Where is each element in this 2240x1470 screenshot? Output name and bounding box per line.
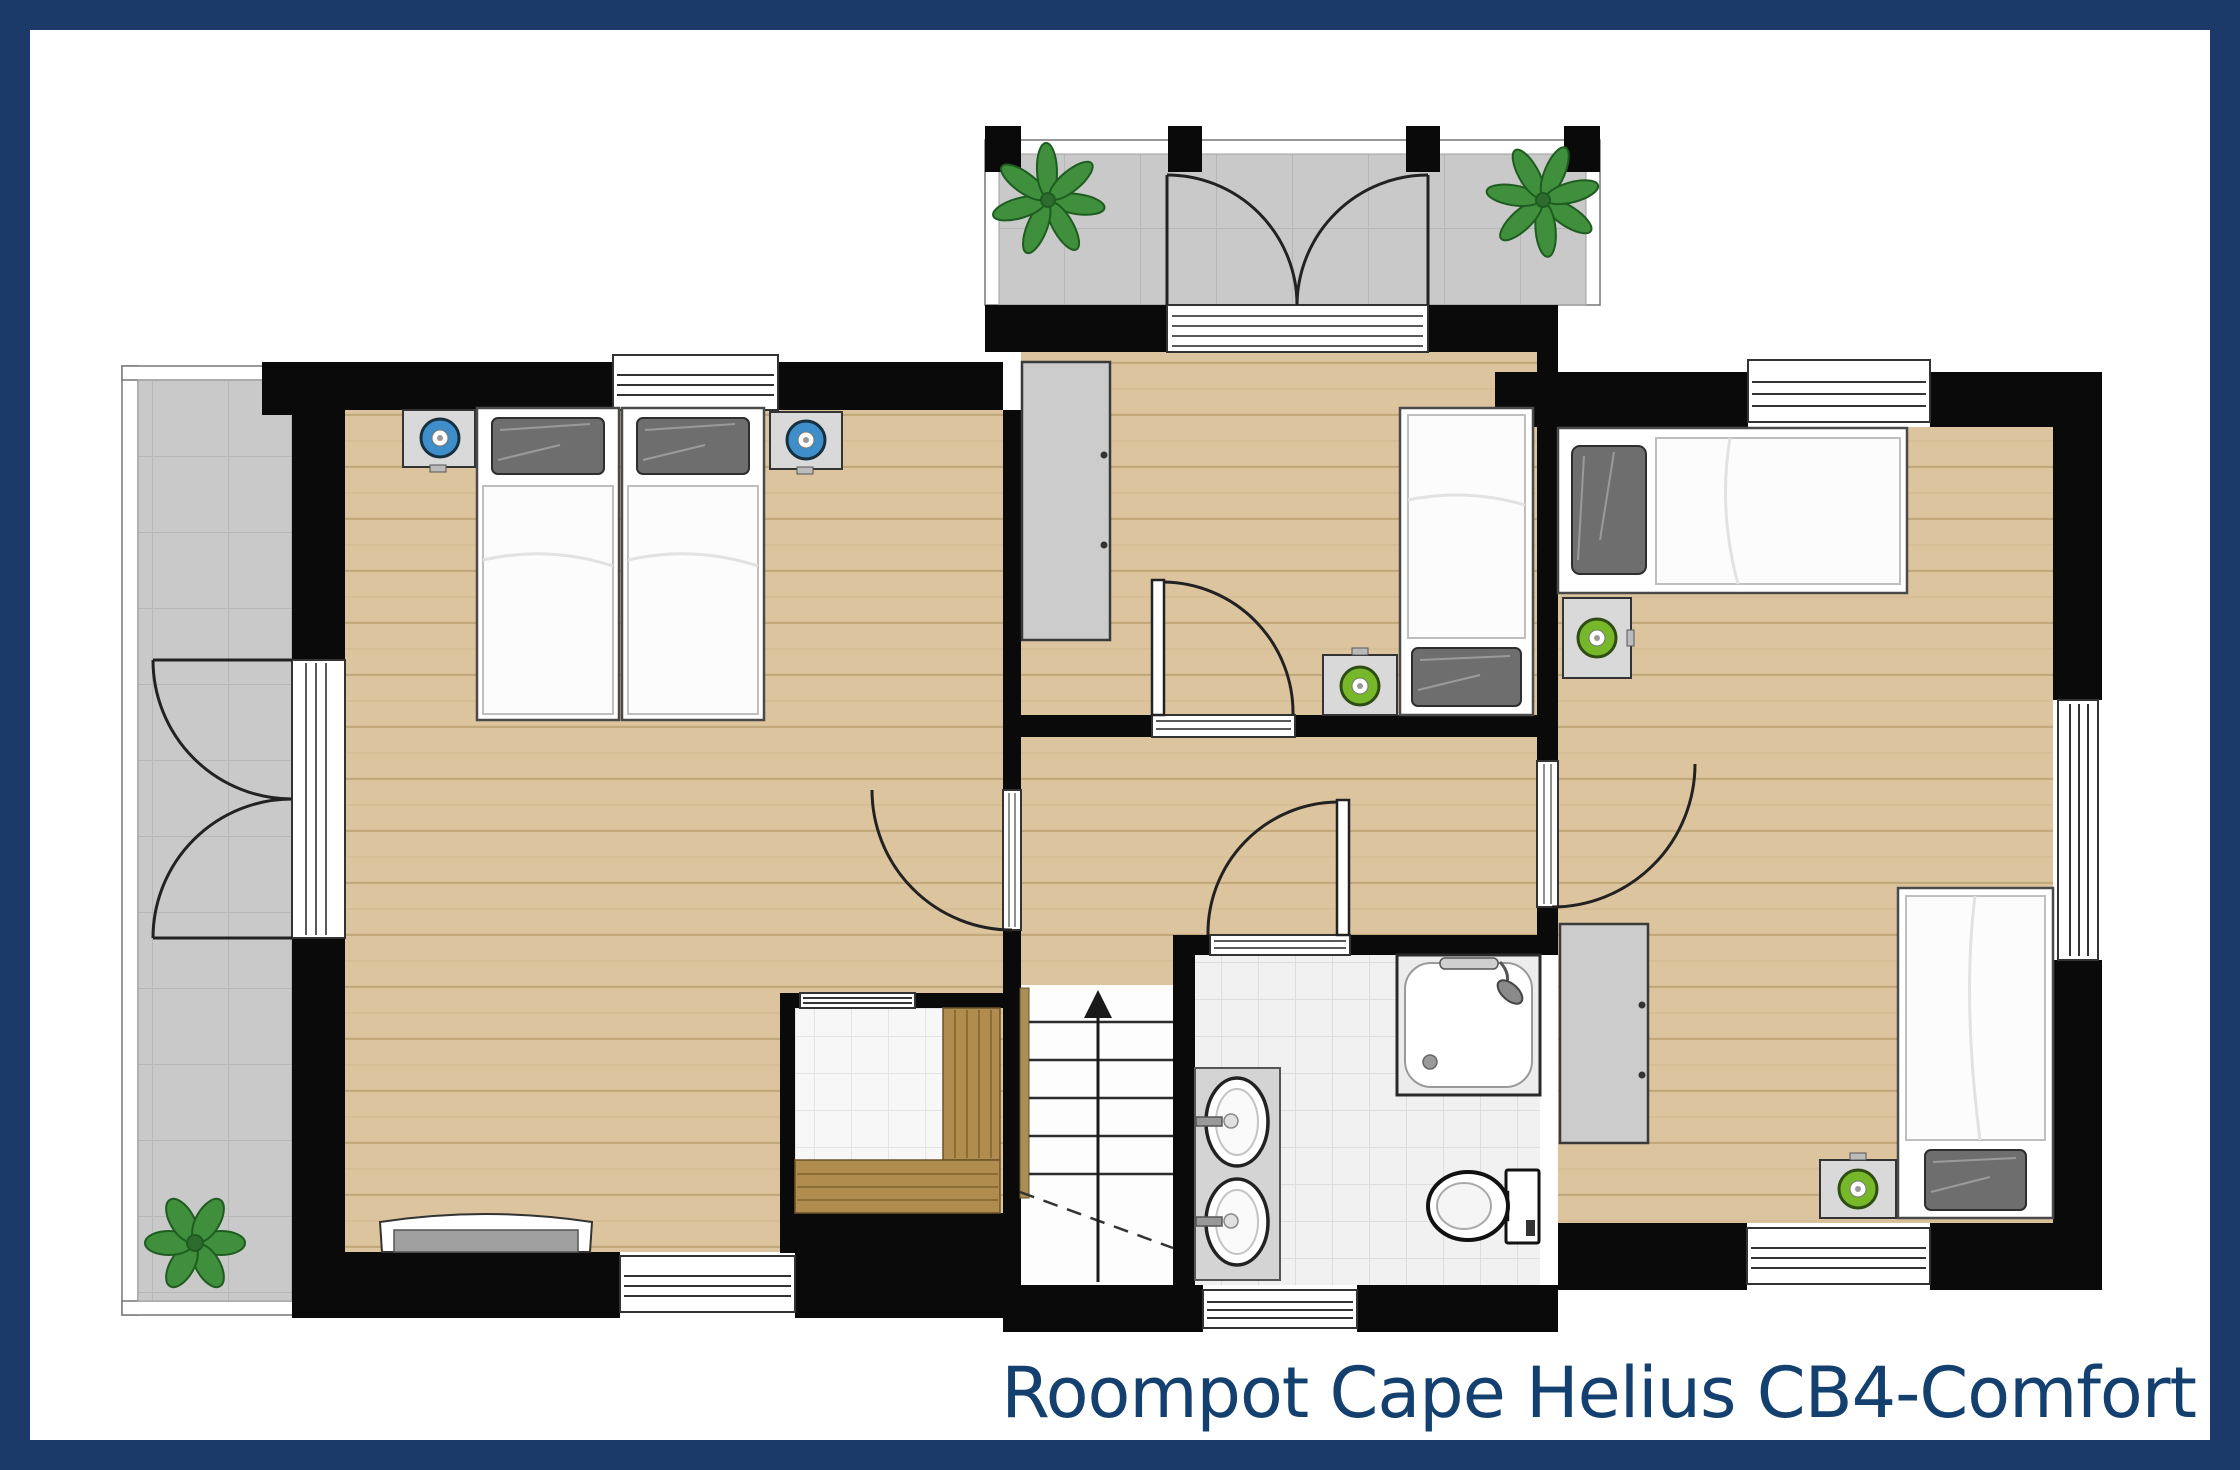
faucet-icon — [1196, 1217, 1222, 1226]
duvet — [1408, 415, 1525, 638]
wardrobe-handle — [1101, 542, 1108, 549]
wall — [1350, 935, 1558, 955]
wardrobe-handle — [1639, 1002, 1646, 1009]
terrace-railing-bottom — [122, 1301, 294, 1315]
terrace-floor — [138, 380, 292, 1301]
bedroom3-top-window — [1748, 360, 1930, 422]
pillar-icon — [1406, 126, 1440, 172]
nightstand — [1323, 648, 1397, 715]
duvet — [1656, 438, 1900, 584]
shower-tray — [1405, 963, 1532, 1087]
hallway-floor-stairs-approach — [1021, 935, 1173, 985]
hallway-floor — [1021, 737, 1537, 935]
grab-bar — [1440, 958, 1498, 969]
sauna-glazed-panel — [800, 993, 915, 1008]
balcony — [985, 126, 1600, 305]
bathroom-window — [1203, 1290, 1357, 1328]
single-bed — [622, 408, 764, 720]
wall — [1558, 1223, 1747, 1290]
plan-title: Roompot Cape Helius CB4-Comfort — [1001, 1352, 2196, 1434]
bedroom3-side-window — [2058, 700, 2098, 960]
nightstand — [770, 412, 842, 474]
nightstand — [403, 410, 475, 472]
shower — [1397, 955, 1540, 1095]
wall — [1003, 1285, 1203, 1332]
stair-handrail — [1020, 988, 1029, 1198]
bedroom3-bottom-window — [1747, 1228, 1930, 1284]
wall — [345, 1252, 620, 1318]
vanity — [1195, 1068, 1280, 1280]
wardrobe-handle — [1101, 452, 1108, 459]
nightstand — [1820, 1153, 1896, 1218]
wall — [1003, 410, 1021, 790]
wall — [292, 410, 345, 660]
terrace — [122, 366, 294, 1315]
wall — [1930, 1223, 2102, 1290]
wooden-bench — [943, 1008, 1000, 1160]
terrace-railing-left — [122, 366, 138, 1315]
single-bed — [1558, 428, 1907, 593]
floor-plan-page: Roompot Cape Helius CB4-Comfort — [0, 0, 2240, 1470]
wall — [2053, 372, 2102, 700]
wardrobe — [1022, 362, 1110, 640]
floor-plan-drawing — [0, 0, 2240, 1470]
single-bed — [1898, 888, 2053, 1218]
nightstand — [1563, 598, 1634, 678]
wooden-bench — [795, 1160, 1000, 1213]
wall — [1357, 1285, 1558, 1332]
wall — [1173, 955, 1195, 1285]
duvet — [628, 486, 758, 714]
wardrobe — [1560, 924, 1648, 1143]
master-top-window — [613, 355, 778, 410]
duvet — [483, 486, 613, 714]
wall — [915, 993, 1020, 1008]
pillar-icon — [1168, 126, 1202, 172]
wall — [1003, 1260, 1021, 1332]
single-bed — [1400, 408, 1533, 715]
faucet-icon — [1196, 1117, 1222, 1126]
toilet-icon — [1428, 1170, 1539, 1243]
wall — [292, 938, 345, 1318]
wall — [1173, 935, 1210, 955]
wall — [795, 1252, 1003, 1318]
wall — [262, 362, 345, 415]
sideboard — [380, 1214, 592, 1252]
pillar-icon — [1564, 126, 1600, 172]
wall — [780, 1213, 1020, 1252]
wardrobe-handle — [1639, 1072, 1646, 1079]
single-bed — [477, 408, 619, 720]
master-bottom-window — [620, 1256, 795, 1312]
wall — [1295, 715, 1537, 737]
shower-drain — [1423, 1055, 1437, 1069]
wall — [1003, 930, 1021, 1260]
wall — [1021, 715, 1152, 737]
